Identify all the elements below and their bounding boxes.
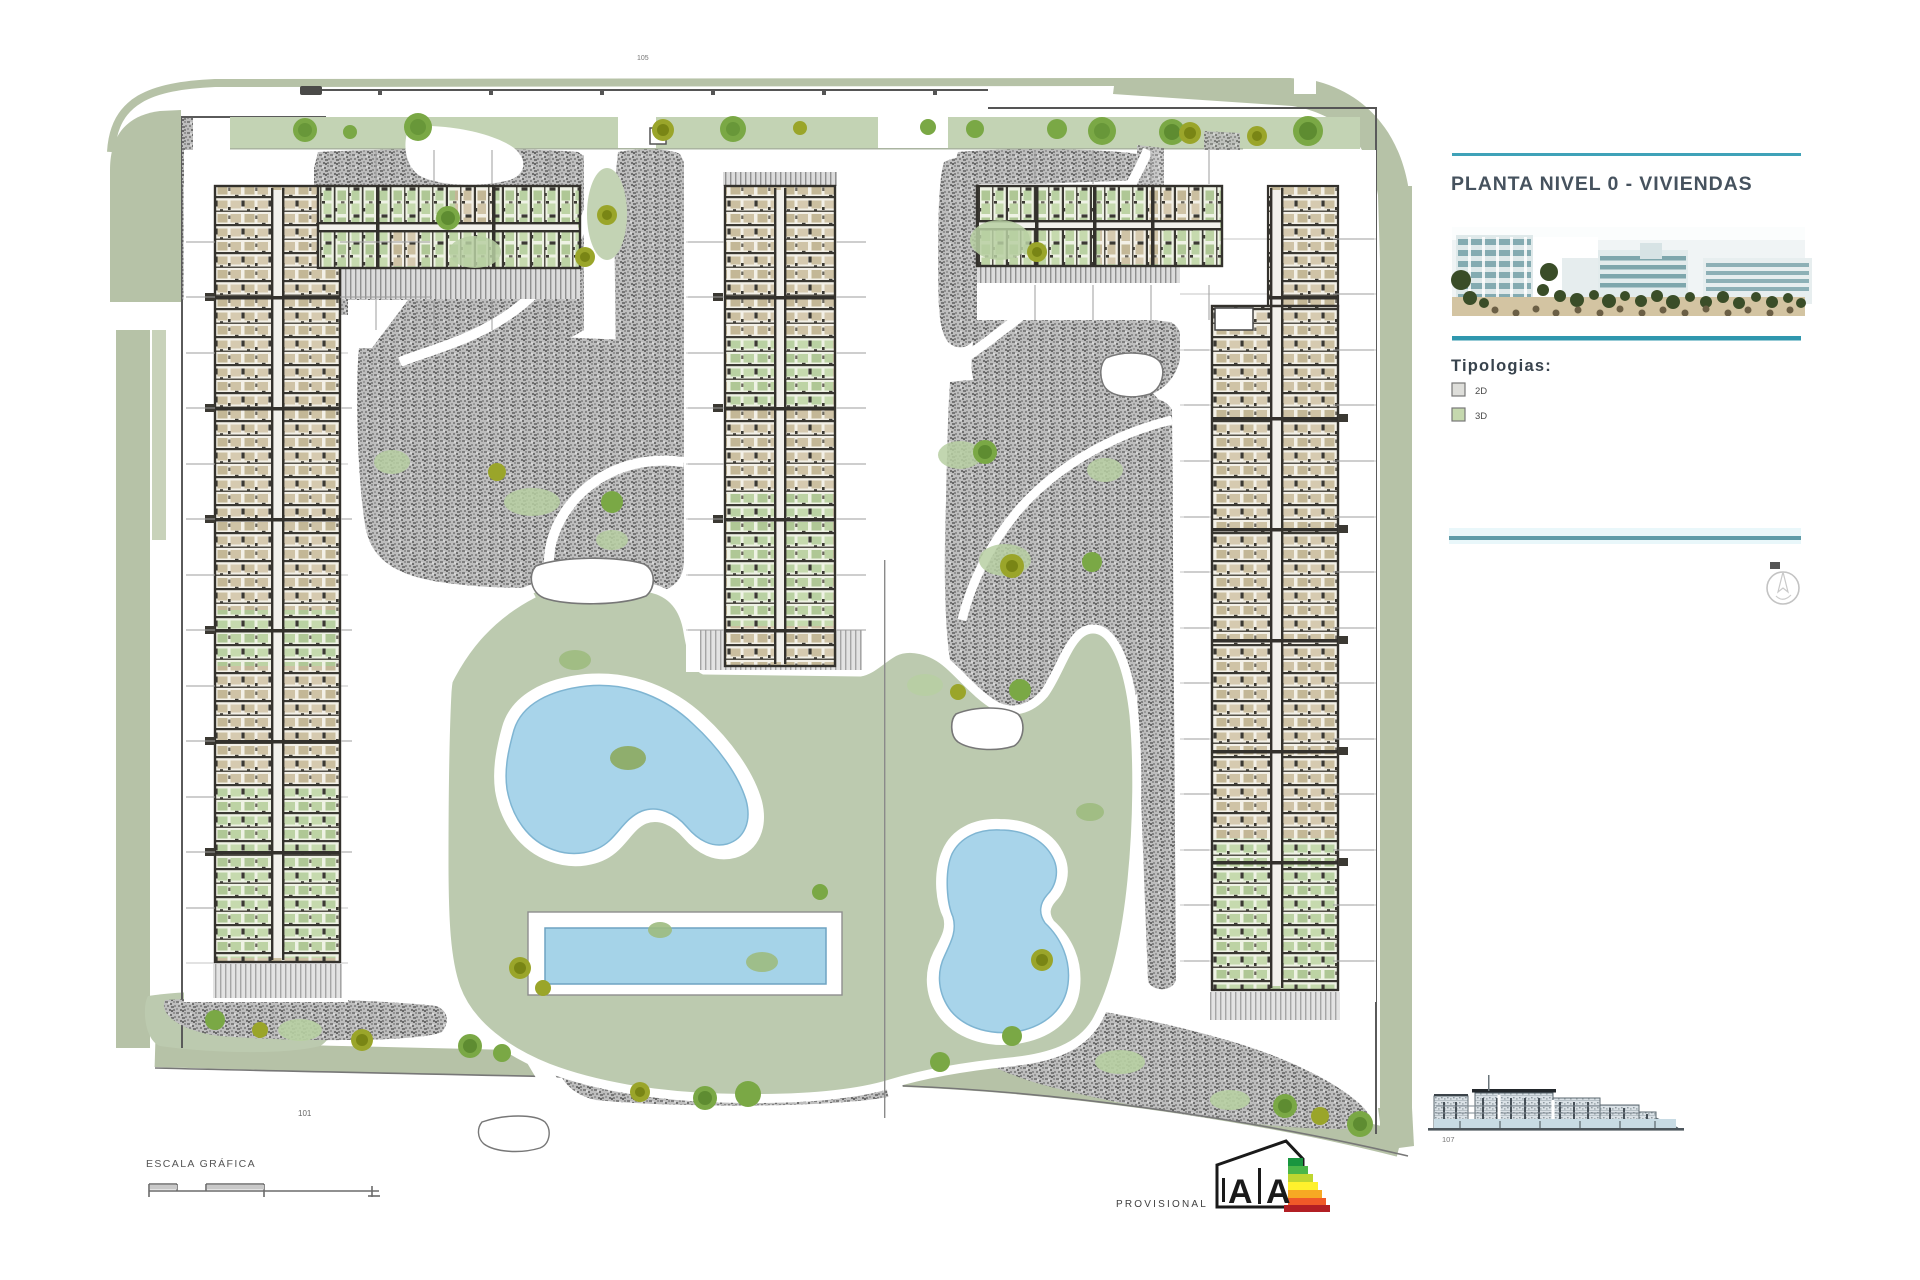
svg-text:PROVISIONAL: PROVISIONAL	[1116, 1199, 1208, 1210]
svg-text:A: A	[1266, 1173, 1291, 1211]
svg-text:A: A	[1228, 1173, 1253, 1211]
svg-text:105: 105	[637, 55, 649, 62]
svg-text:ESCALA GRÁFICA: ESCALA GRÁFICA	[146, 1157, 256, 1170]
svg-text:Tipologias:: Tipologias:	[1451, 357, 1552, 375]
svg-text:3D: 3D	[1475, 411, 1487, 422]
svg-text:PLANTA NIVEL 0 - VIVIENDAS: PLANTA NIVEL 0 - VIVIENDAS	[1451, 173, 1753, 195]
svg-text:101: 101	[298, 1109, 312, 1118]
svg-text:107: 107	[1442, 1135, 1455, 1144]
svg-text:2D: 2D	[1475, 386, 1487, 397]
